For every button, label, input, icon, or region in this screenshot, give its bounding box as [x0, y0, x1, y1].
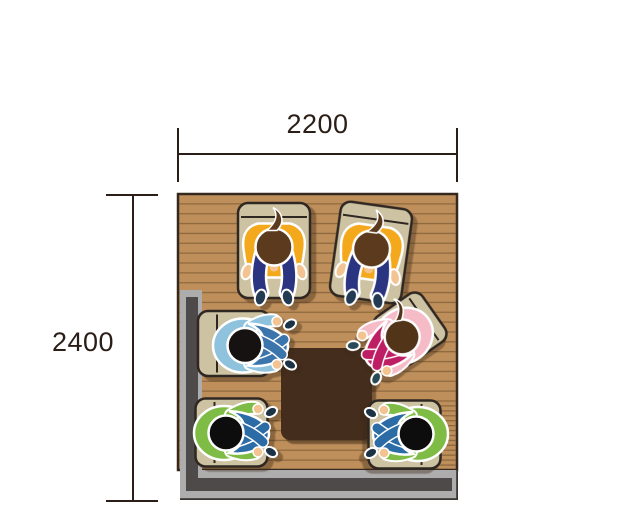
- head-icon: [399, 417, 434, 452]
- person-top-left-icon: [238, 203, 310, 307]
- head-icon: [256, 229, 293, 266]
- dimension-height-label: 2400: [50, 329, 116, 356]
- head-icon: [228, 328, 263, 363]
- dimension-width-label: 2200: [178, 111, 457, 138]
- room-diagram: [0, 0, 640, 506]
- head-icon: [209, 416, 244, 451]
- person-bottom-left-green-icon: [194, 399, 279, 467]
- person-bottom-right-green-icon: [363, 401, 448, 469]
- person-top-right-icon: [328, 200, 414, 313]
- floor-plan-canvas: 2200 2400: [0, 0, 640, 506]
